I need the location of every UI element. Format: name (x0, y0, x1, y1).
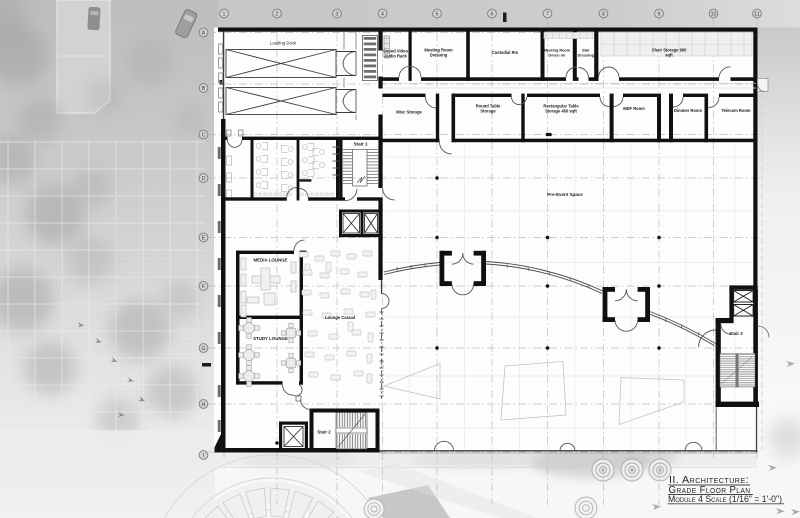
svg-text:Pre-Event Space: Pre-Event Space (547, 192, 583, 197)
svg-text:Star: Star (582, 49, 590, 53)
svg-text:Dressing: Dressing (430, 53, 448, 58)
svg-text:5: 5 (436, 11, 439, 17)
svg-text:sqft: sqft (665, 53, 673, 58)
svg-text:Audio Rack: Audio Rack (384, 54, 407, 59)
svg-text:Stair 3: Stair 3 (729, 331, 743, 336)
svg-text:I: I (203, 453, 204, 459)
svg-text:Misc Storage: Misc Storage (396, 110, 422, 115)
svg-text:Telecom Room: Telecom Room (721, 108, 750, 113)
svg-text:8: 8 (602, 11, 605, 17)
svg-text:Lounge Casual: Lounge Casual (325, 315, 355, 320)
svg-text:10: 10 (711, 11, 717, 17)
svg-text:B: B (202, 86, 206, 92)
svg-text:C: C (202, 132, 206, 138)
svg-text:F: F (202, 284, 205, 290)
svg-text:STUDY LOUNGE: STUDY LOUNGE (253, 336, 288, 341)
svg-text:MEDIA LOUNGE: MEDIA LOUNGE (254, 258, 288, 263)
svg-text:Stair 1: Stair 1 (353, 142, 367, 147)
svg-text:4: 4 (381, 11, 384, 17)
svg-text:Dimmer Room: Dimmer Room (674, 108, 702, 113)
svg-text:A: A (202, 30, 206, 36)
svg-text:G: G (201, 346, 205, 352)
svg-text:9: 9 (658, 11, 661, 17)
svg-text:Dressing: Dressing (578, 54, 595, 58)
svg-text:H: H (202, 402, 206, 408)
svg-text:Custodial Rm: Custodial Rm (492, 50, 519, 55)
svg-text:1: 1 (223, 11, 226, 17)
svg-text:7: 7 (546, 11, 549, 17)
svg-text:Meeting Room: Meeting Room (544, 49, 571, 53)
svg-text:Green rm: Green rm (549, 54, 567, 58)
svg-text:E: E (202, 235, 206, 241)
svg-text:Storage: Storage (480, 109, 496, 114)
svg-text:2: 2 (276, 11, 279, 17)
svg-text:6: 6 (491, 11, 494, 17)
svg-text:Storage 450 sqft: Storage 450 sqft (545, 109, 577, 114)
svg-text:3: 3 (336, 11, 339, 17)
svg-text:11: 11 (754, 11, 759, 17)
svg-text:Module 4 Scale (1/16" = 1'-0"): Module 4 Scale (1/16" = 1'-0") (668, 494, 782, 504)
svg-text:Loading Dock: Loading Dock (270, 41, 297, 46)
svg-text:D: D (202, 176, 206, 182)
svg-text:MDF Room: MDF Room (623, 106, 645, 111)
svg-text:Stair 2: Stair 2 (317, 430, 331, 435)
